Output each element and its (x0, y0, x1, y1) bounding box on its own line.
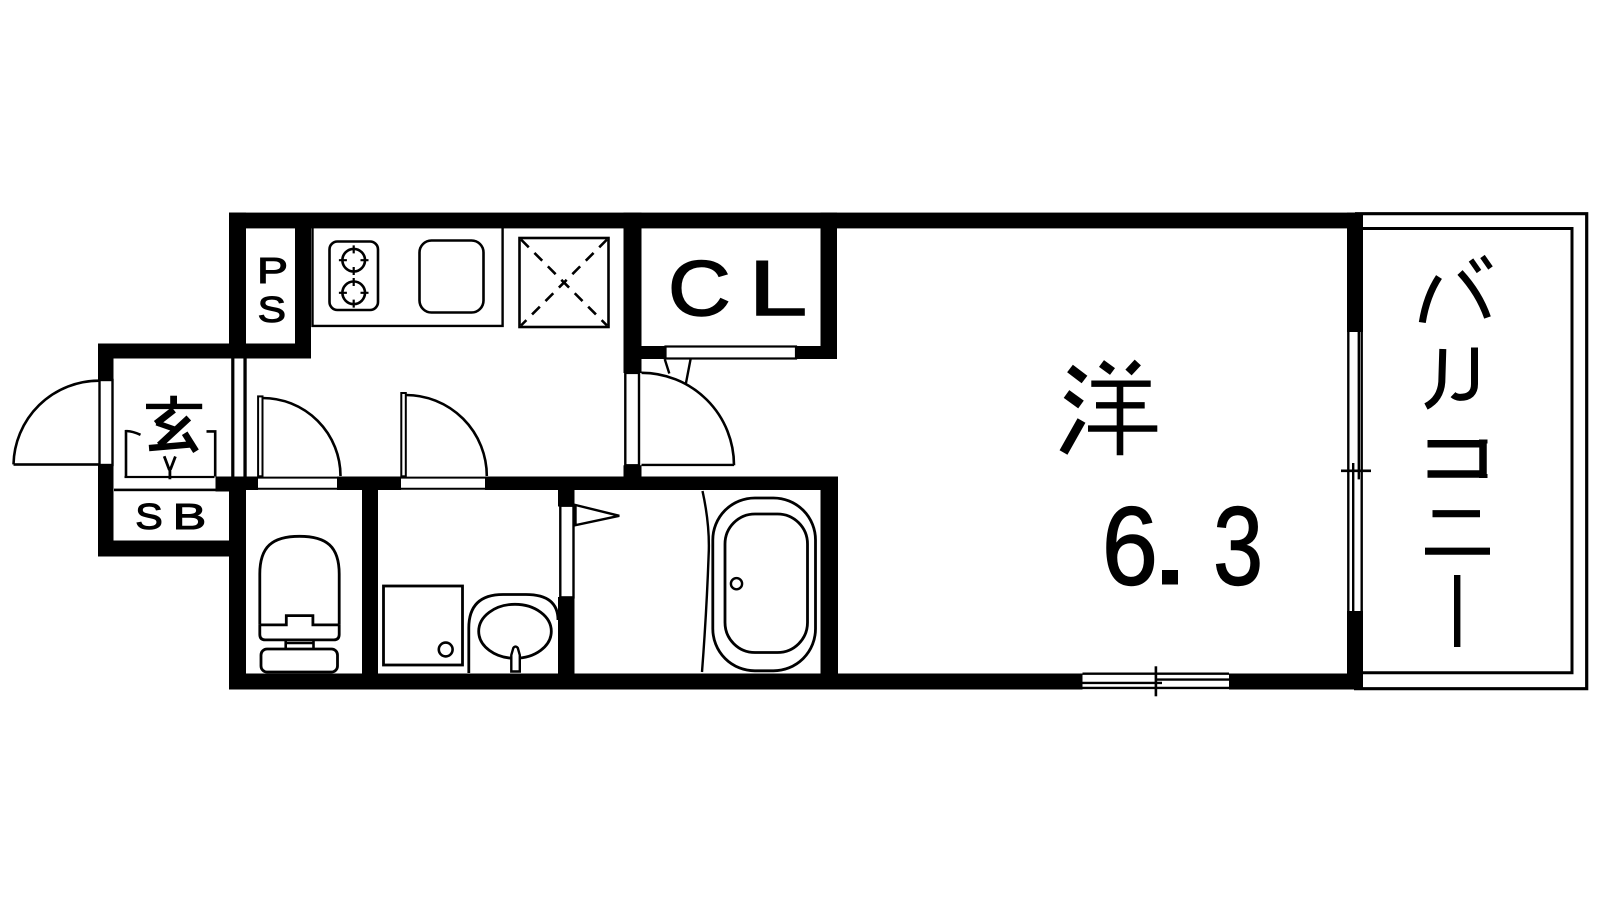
svg-text:S: S (258, 290, 286, 330)
svg-text:L: L (749, 245, 808, 332)
svg-text:S: S (135, 497, 163, 537)
svg-text:B: B (173, 497, 207, 538)
svg-text:6: 6 (1102, 485, 1158, 608)
svg-text:3: 3 (1213, 486, 1263, 609)
svg-text:P: P (257, 250, 288, 291)
svg-text:C: C (668, 246, 731, 332)
